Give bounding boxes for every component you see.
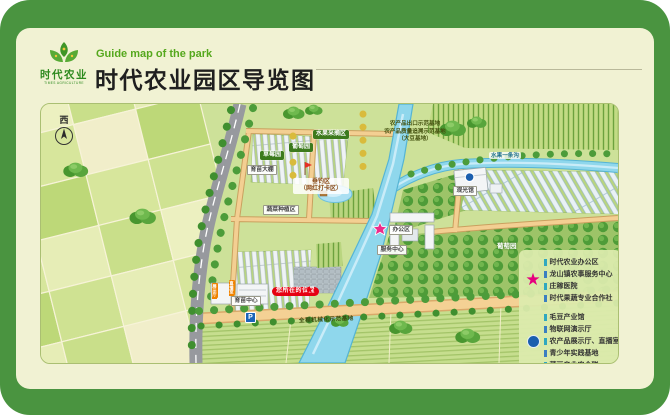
legend-item: 时代果蔬专业合作社 (544, 293, 618, 303)
legend-item: 庄稼医院 (544, 281, 618, 291)
legend-item-label: 青少年实践基地 (550, 348, 599, 358)
label-vineyard: 葡萄园 (497, 243, 517, 250)
legend-item-label: 菜豆产业农合联 (550, 360, 599, 364)
label-cert-line2: 农产品质量追溯示范基地 (363, 129, 467, 137)
map-canvas: 西 水果采摘区 葡萄园 草莓园 育苗大棚 蔬菜种植区 垂钓区 （网红打卡区） 农… (40, 103, 619, 364)
legend-star-list: 时代农业办公区 龙山镇农事服务中心 庄稼医院 时代果蔬专业合作社 (544, 255, 618, 305)
legend-item-label: 物联网演示厅 (550, 324, 592, 334)
legend-item-label: 毛豆产业馆 (550, 312, 585, 322)
legend-tick (544, 338, 547, 345)
map-legend: ★ 时代农业办公区 龙山镇农事服务中心 庄稼医院 时代果蔬专业合作社 毛豆产业馆… (519, 250, 619, 364)
legend-tick (544, 259, 547, 266)
label-cert-line1: 农产品出口示范基地 (363, 121, 467, 129)
logo-en-text: TIMES AGRICULTURE (34, 81, 94, 85)
label-nursery-center: 育苗中心 (231, 296, 261, 306)
legend-tick (544, 314, 547, 321)
legend-item: 农产品展示厅、直播室 (544, 336, 619, 346)
logo-emblem-icon (46, 41, 82, 65)
compass-west-label: 西 (51, 113, 77, 126)
legend-item-label: 龙山镇农事服务中心 (550, 269, 613, 279)
label-office: 办公区 (389, 225, 413, 235)
legend-dot-list: 毛豆产业馆 物联网演示厅 农产品展示厅、直播室 青少年实践基地 菜豆产业农合联 (544, 310, 619, 364)
green-frame: 时代农业 TIMES AGRICULTURE Guide map of the … (0, 0, 670, 415)
compass: 西 (51, 113, 77, 151)
park-logo: 时代农业 TIMES AGRICULTURE (34, 41, 94, 85)
legend-item: 物联网演示厅 (544, 324, 619, 334)
legend-tick (544, 350, 547, 357)
label-fishing-line2: （网红打卡区） (293, 186, 349, 193)
legend-item-label: 时代果蔬专业合作社 (550, 293, 613, 303)
hall-dot-marker (465, 172, 475, 182)
label-sightseeing-hall: 观光馆 (453, 186, 477, 196)
label-strawberry: 草莓园 (260, 151, 284, 160)
legend-item: 毛豆产业馆 (544, 312, 619, 322)
parking-sign: P (245, 312, 256, 323)
legend-tick (544, 283, 547, 290)
label-livestream-ribbon: 直播室 (229, 280, 235, 295)
legend-star-group: ★ 时代农业办公区 龙山镇农事服务中心 庄稼医院 时代果蔬专业合作社 (522, 255, 618, 305)
label-river: 水果一条沟 (489, 152, 521, 159)
logo-cn-text: 时代农业 (34, 70, 94, 81)
legend-dot-icon (527, 335, 540, 348)
legend-item: 菜豆产业农合联 (544, 360, 619, 364)
legend-tick (544, 295, 547, 302)
legend-item-label: 庄稼医院 (550, 281, 578, 291)
legend-item: 龙山镇农事服务中心 (544, 269, 618, 279)
legend-dot-group: 毛豆产业馆 物联网演示厅 农产品展示厅、直播室 青少年实践基地 菜豆产业农合联 (522, 310, 618, 364)
compass-needle-icon (54, 126, 74, 146)
label-grape: 葡萄园 (289, 143, 313, 152)
label-fishing-line1: 垂钓区 (293, 179, 349, 186)
label-seedling-shed: 育苗大棚 (247, 165, 277, 175)
legend-item-label: 时代农业办公区 (550, 257, 599, 267)
header-divider (316, 69, 642, 70)
label-exhibit-ribbon: 展示厅 (212, 283, 218, 298)
label-cert-line3: （大豆基地） (363, 136, 467, 144)
label-service-center: 服务中心 (377, 245, 407, 255)
label-fishing-area: 垂钓区 （网红打卡区） (293, 178, 349, 194)
legend-dot-cell (522, 335, 544, 348)
legend-tick (544, 362, 547, 365)
legend-item: 时代农业办公区 (544, 257, 618, 267)
cream-panel: 时代农业 TIMES AGRICULTURE Guide map of the … (16, 28, 654, 389)
label-fruit-picking: 水果采摘区 (313, 130, 349, 139)
page-title: 时代农业园区导览图 (95, 61, 316, 95)
you-are-here-star-icon: ★ (305, 285, 314, 297)
header-subtitle-en: Guide map of the park (96, 48, 212, 60)
legend-tick (544, 271, 547, 278)
label-vegetable-area: 蔬菜种植区 (263, 205, 299, 215)
legend-item-label: 农产品展示厅、直播室 (550, 336, 620, 346)
legend-tick (544, 326, 547, 333)
label-certification-block: 农产品出口示范基地 农产品质量追溯示范基地 （大豆基地） (363, 121, 467, 144)
legend-star-icon: ★ (522, 272, 544, 288)
legend-item: 青少年实践基地 (544, 348, 619, 358)
